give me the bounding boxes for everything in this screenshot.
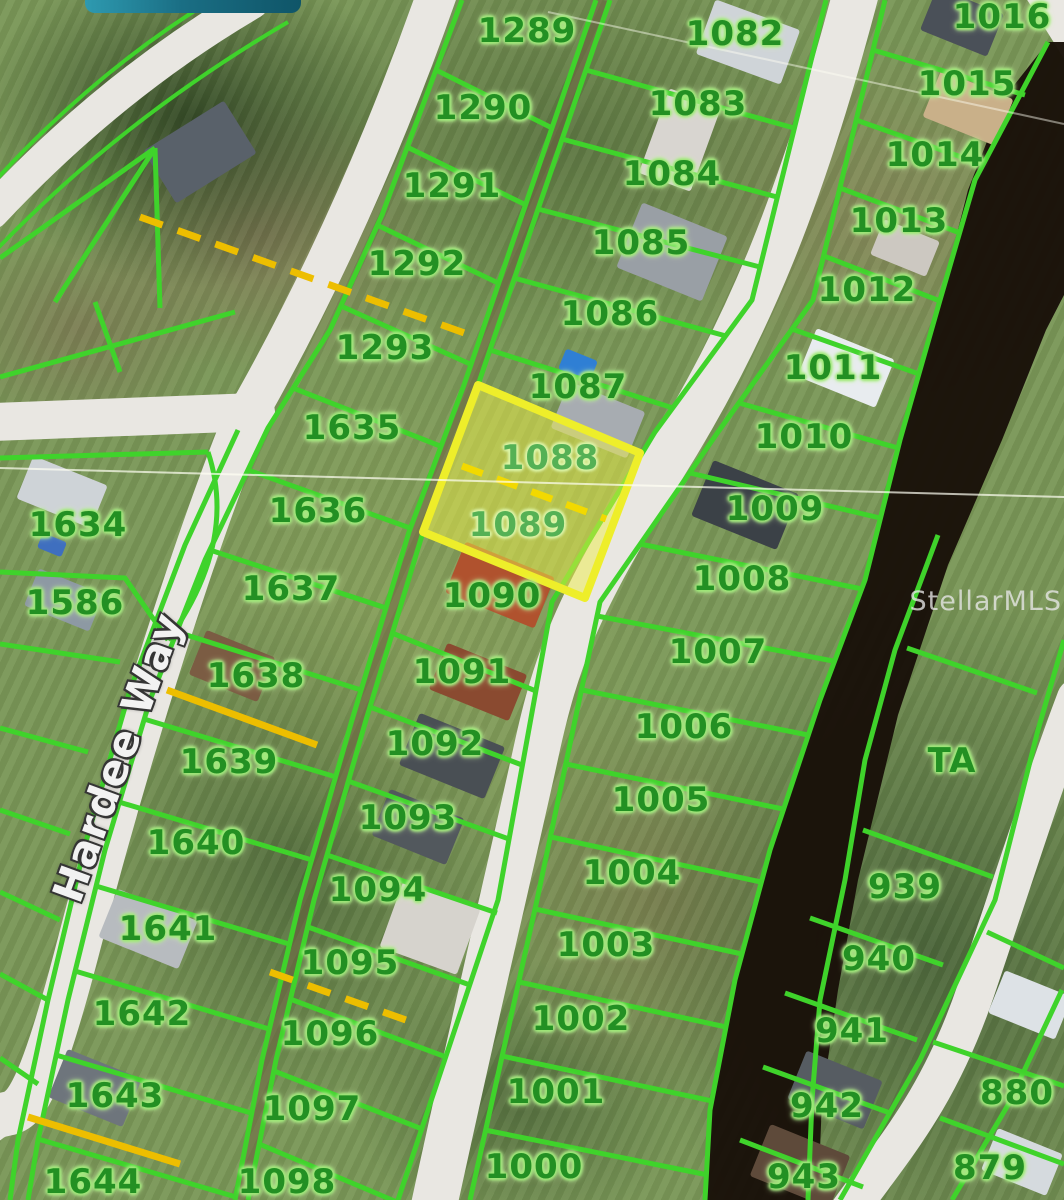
lot-label-1086: 1086 bbox=[561, 294, 660, 334]
lot-label-1088: 1088 bbox=[501, 438, 600, 478]
stellar-mls-watermark: StellarMLS bbox=[910, 586, 1062, 617]
lot-label-943: 943 bbox=[767, 1157, 841, 1197]
lot-label-1011: 1011 bbox=[784, 348, 883, 388]
lot-label-1083: 1083 bbox=[649, 84, 748, 124]
lot-label-1008: 1008 bbox=[693, 559, 792, 599]
lot-label-942: 942 bbox=[790, 1086, 864, 1126]
lot-label-1639: 1639 bbox=[180, 742, 279, 782]
lot-label-1094: 1094 bbox=[329, 870, 428, 910]
map-canvas[interactable]: 1289129012911292129316351636163716381639… bbox=[0, 0, 1064, 1200]
lot-label-1642: 1642 bbox=[93, 994, 192, 1034]
lot-label-1000: 1000 bbox=[485, 1147, 584, 1187]
lot-label-1292: 1292 bbox=[368, 244, 467, 284]
lot-label-1643: 1643 bbox=[66, 1076, 165, 1116]
map-overlay-banner bbox=[85, 0, 301, 13]
lot-label-1635: 1635 bbox=[303, 408, 402, 448]
lot-label-1012: 1012 bbox=[818, 270, 917, 310]
lot-label-1090: 1090 bbox=[443, 576, 542, 616]
lot-label-1014: 1014 bbox=[886, 135, 985, 175]
lot-label-1644: 1644 bbox=[44, 1162, 143, 1200]
lot-label-1641: 1641 bbox=[119, 909, 218, 949]
lot-label-1096: 1096 bbox=[281, 1014, 380, 1054]
lot-label-1636: 1636 bbox=[269, 491, 368, 531]
lot-label-1002: 1002 bbox=[532, 999, 631, 1039]
lot-label-1009: 1009 bbox=[726, 489, 825, 529]
lot-label-1007: 1007 bbox=[669, 632, 768, 672]
lot-label-TA: TA bbox=[928, 741, 977, 781]
lot-label-1638: 1638 bbox=[207, 656, 306, 696]
lot-label-940: 940 bbox=[842, 939, 916, 979]
lot-label-1291: 1291 bbox=[403, 166, 502, 206]
lot-label-1089: 1089 bbox=[469, 505, 568, 545]
lot-label-1001: 1001 bbox=[507, 1072, 606, 1112]
lot-label-1586: 1586 bbox=[26, 583, 125, 623]
lot-label-1005: 1005 bbox=[612, 780, 711, 820]
lot-label-1087: 1087 bbox=[529, 367, 628, 407]
lot-label-941: 941 bbox=[815, 1011, 889, 1051]
lot-label-1016: 1016 bbox=[953, 0, 1052, 37]
lot-label-1093: 1093 bbox=[359, 798, 458, 838]
lot-label-1640: 1640 bbox=[147, 823, 246, 863]
lot-label-1015: 1015 bbox=[918, 64, 1017, 104]
lot-label-1098: 1098 bbox=[238, 1162, 337, 1200]
lot-label-1013: 1013 bbox=[850, 201, 949, 241]
lot-label-1290: 1290 bbox=[434, 88, 533, 128]
lot-labels-layer: 1289129012911292129316351636163716381639… bbox=[0, 0, 1064, 1200]
lot-label-1004: 1004 bbox=[583, 853, 682, 893]
lot-label-1006: 1006 bbox=[635, 707, 734, 747]
lot-label-939: 939 bbox=[868, 867, 942, 907]
lot-label-1091: 1091 bbox=[413, 652, 512, 692]
lot-label-1095: 1095 bbox=[301, 943, 400, 983]
lot-label-1092: 1092 bbox=[386, 724, 485, 764]
lot-label-1082: 1082 bbox=[686, 14, 785, 54]
lot-label-879: 879 bbox=[953, 1148, 1027, 1188]
lot-label-1289: 1289 bbox=[478, 11, 577, 51]
lot-label-1003: 1003 bbox=[557, 925, 656, 965]
lot-label-1293: 1293 bbox=[336, 328, 435, 368]
lot-label-1634: 1634 bbox=[29, 505, 128, 545]
lot-label-1637: 1637 bbox=[242, 569, 341, 609]
lot-label-1097: 1097 bbox=[263, 1089, 362, 1129]
lot-label-1084: 1084 bbox=[623, 154, 722, 194]
lot-label-1010: 1010 bbox=[755, 417, 854, 457]
lot-label-880: 880 bbox=[980, 1073, 1054, 1113]
lot-label-1085: 1085 bbox=[592, 223, 691, 263]
